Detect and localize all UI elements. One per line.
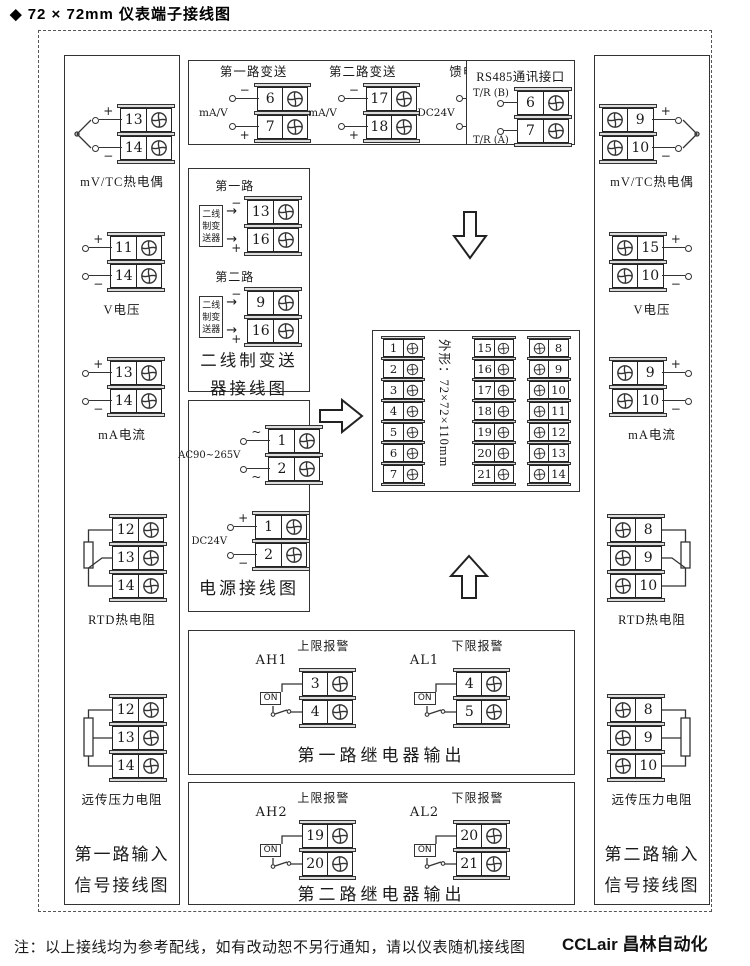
screw-icon <box>533 468 546 481</box>
screw-icon <box>142 577 160 595</box>
screw-icon <box>140 392 158 410</box>
terminal-number: 10 <box>635 754 662 778</box>
lead-negative: − <box>664 264 692 288</box>
alarm-title: 上限报警 <box>256 637 354 654</box>
terminal: 21 <box>474 465 514 483</box>
terminal-screw <box>494 423 514 441</box>
lead-positive: + <box>227 515 255 539</box>
terminal-number: 19 <box>302 824 329 848</box>
right-column-title-line1: 第二路输入 <box>605 840 700 871</box>
polarity-sign: + <box>238 512 248 524</box>
terminal-screw <box>529 444 549 462</box>
lead-wire <box>236 98 259 99</box>
polarity-sign: − <box>671 278 681 290</box>
screw-icon <box>298 432 316 450</box>
rtd-resistor-icon <box>662 514 694 602</box>
arrow-right-icon: → <box>226 204 237 219</box>
terminal: 11 <box>110 236 162 260</box>
terminal-plate <box>599 160 657 164</box>
terminal: 6 <box>383 444 423 462</box>
terminal-plate <box>609 288 667 292</box>
terminal-screw <box>610 726 636 750</box>
terminal-number: 16 <box>247 319 274 343</box>
polarity-sign: − <box>93 278 103 290</box>
terminal: 9 <box>612 361 664 385</box>
screw-icon <box>533 447 546 460</box>
terminal: 20 <box>474 444 514 462</box>
terminal-block: 2021 <box>456 820 508 880</box>
terminal-number: 13 <box>112 546 139 570</box>
terminal: 10 <box>612 264 664 288</box>
terminal-number: 13 <box>120 108 147 132</box>
rear-terminal-block: 1234567 外形：72×72×110mm 15161718192021 89… <box>372 330 580 492</box>
terminal-plate <box>244 252 302 256</box>
terminal: 10 <box>529 381 569 399</box>
terminal-screw <box>138 574 164 598</box>
left-group-current: + − 1314 mA电流 <box>82 357 162 443</box>
terminal-number: 16 <box>247 228 274 252</box>
terminal: 8 <box>610 518 662 542</box>
lead-wire <box>99 119 122 120</box>
terminal-screw <box>294 429 320 453</box>
screw-icon <box>533 426 546 439</box>
screw-icon <box>614 729 632 747</box>
left-group-pressure: 121314 远传压力电阻 <box>80 694 164 808</box>
terminal: 2 <box>268 457 320 481</box>
alarm-title: 下限报警 <box>410 637 508 654</box>
terminal-number: 3 <box>383 381 404 399</box>
terminal-screw <box>494 402 514 420</box>
terminal-screw <box>138 726 164 750</box>
relay-section-low-1: 下限报警 AL1 ON 45 <box>410 637 508 728</box>
terminal-screw <box>281 543 307 567</box>
lead-negative: − <box>82 389 110 413</box>
arrow-lead-negative: −→ <box>223 200 247 224</box>
arrow-right-icon <box>318 396 364 436</box>
terminal-number: 8 <box>635 698 662 722</box>
alarm-title: 上限报警 <box>256 789 354 806</box>
terminal-block: 1314 <box>110 357 162 417</box>
screw-icon <box>395 90 413 108</box>
terminal-screw <box>327 824 353 848</box>
terminal-number: 10 <box>637 389 664 413</box>
terminal-screw <box>294 457 320 481</box>
terminal: 14 <box>110 264 162 288</box>
terminal-screw <box>481 672 507 696</box>
screw-icon <box>497 384 510 397</box>
terminal-number: 6 <box>517 91 544 115</box>
lead-negative: − <box>338 87 366 111</box>
terminal-screw <box>327 700 353 724</box>
terminal: 14 <box>112 574 164 598</box>
screw-icon <box>497 342 510 355</box>
screw-icon <box>406 384 419 397</box>
rs485-leads: T/R (B) T/R (A) <box>473 87 517 147</box>
lead-positive: + <box>664 236 692 260</box>
terminal-column-15-21: 15161718192021 <box>474 336 514 486</box>
terminal: 16 <box>474 360 514 378</box>
relay-switch: AH2 ON <box>256 820 302 880</box>
lead-positive: + <box>92 108 120 132</box>
rs485-box: RS485通讯接口 T/R (B) T/R (A) 67 <box>466 60 575 145</box>
terminal-screw <box>138 518 164 542</box>
terminal: 7 <box>257 115 309 139</box>
terminal-plate <box>252 567 310 571</box>
terminal: 10 <box>610 754 662 778</box>
right-group-voltage: 1510 + − V电压 <box>612 232 692 318</box>
transmit-group-2: 第二路变送 mA/V − + 1718 <box>308 61 417 143</box>
leads: + − <box>227 511 255 571</box>
screw-icon <box>406 342 419 355</box>
terminal: 9 <box>247 291 299 315</box>
terminal: 1 <box>268 429 320 453</box>
relay-switch: AL1 ON <box>410 668 456 728</box>
relay-tag: AL1 <box>410 653 439 668</box>
lead-wire <box>662 400 685 401</box>
terminal-number: 4 <box>456 672 483 696</box>
terminal: 13 <box>247 200 299 224</box>
screw-icon <box>142 729 160 747</box>
terminal: 21 <box>456 852 508 876</box>
terminal-number: 3 <box>302 672 329 696</box>
lead-wire <box>345 98 368 99</box>
screw-icon <box>497 363 510 376</box>
terminal-screw <box>403 402 423 420</box>
terminal-block: 1920 <box>302 820 354 880</box>
terminal-number: 7 <box>257 115 284 139</box>
terminal-number: 12 <box>112 698 139 722</box>
lead-positive: + <box>338 115 366 139</box>
terminal-number: 4 <box>302 700 329 724</box>
terminal-number: 13 <box>247 200 274 224</box>
remote-pressure-resistor-icon <box>662 694 694 782</box>
terminal-number: 14 <box>110 264 137 288</box>
lead-wire <box>345 126 368 127</box>
screw-icon <box>406 447 419 460</box>
terminal-screw <box>146 136 172 160</box>
signal-type-label: DC24V <box>417 107 454 119</box>
terminal-block: 121314 <box>112 694 164 782</box>
terminal-screw <box>146 108 172 132</box>
terminal: 4 <box>302 700 354 724</box>
arrow-lead-negative: −→ <box>223 291 247 315</box>
lead-positive: + <box>229 115 257 139</box>
screw-icon <box>142 521 160 539</box>
terminal-number: 11 <box>110 236 137 260</box>
screw-icon <box>140 364 158 382</box>
terminal-screw <box>494 339 514 357</box>
lead-wire <box>652 147 675 148</box>
dimension-label: 外形：72×72×110mm <box>436 339 455 467</box>
terminal-block: 12 <box>268 425 320 485</box>
terminal-plate <box>254 139 312 143</box>
terminal-number: 1 <box>383 339 404 357</box>
terminal-number: 2 <box>383 360 404 378</box>
right-column-title-line2: 信号接线图 <box>605 871 700 902</box>
terminal-number: 14 <box>548 465 569 483</box>
left-group-voltage: + − 1114 V电压 <box>82 232 162 318</box>
screw-icon <box>547 122 565 140</box>
terminal-screw <box>403 444 423 462</box>
terminal: 3 <box>302 672 354 696</box>
terminal-screw <box>610 754 636 778</box>
relay-on-label: ON <box>414 692 436 705</box>
group-title: 第一路变送 <box>220 61 288 80</box>
lead-wire <box>89 247 112 248</box>
screw-icon <box>614 757 632 775</box>
brand-watermark: CCLair 昌林自动化 <box>562 930 707 955</box>
right-group-mvtc: 910 + − mV/TC热电偶 <box>602 104 702 190</box>
screw-icon <box>331 675 349 693</box>
terminal-number: 9 <box>548 360 569 378</box>
terminal-block: 916 <box>247 287 299 347</box>
terminal-block: 910 <box>612 357 664 417</box>
screw-icon <box>497 405 510 418</box>
group-label: 远传压力电阻 <box>81 789 162 808</box>
lead-negative: − <box>664 389 692 413</box>
terminal: 18 <box>366 115 418 139</box>
lead-ac: ~ <box>240 457 268 481</box>
terminal-plate <box>609 413 667 417</box>
relay-section-high-1: 上限报警 AH1 ON 34 <box>256 637 354 728</box>
lead-wire <box>89 400 112 401</box>
arrow-right-icon: → <box>226 232 237 247</box>
lead-negative: − <box>654 136 682 160</box>
lead-negative: − <box>92 136 120 160</box>
polarity-sign: + <box>93 358 103 370</box>
terminal-screw <box>529 360 549 378</box>
screw-icon <box>485 827 503 845</box>
relay-box-1-title: 第一路继电器输出 <box>199 741 564 766</box>
terminal-number: 9 <box>637 361 664 385</box>
lead-wire <box>662 372 685 373</box>
lead-positive: + <box>664 361 692 385</box>
terminal: 1 <box>383 339 423 357</box>
screw-icon <box>142 549 160 567</box>
transmit-group-1: 第一路变送 mA/V − + 67 <box>199 61 308 143</box>
lead-wire <box>652 119 675 120</box>
terminal-number: 20 <box>456 824 483 848</box>
screw-icon <box>277 294 295 312</box>
terminal-screw <box>273 200 299 224</box>
terminal-screw <box>612 389 638 413</box>
lead-wire <box>503 102 518 103</box>
terminal-screw <box>602 108 628 132</box>
screw-icon <box>497 447 510 460</box>
terminal-number: 8 <box>548 339 569 357</box>
arrow-right-icon: → <box>226 323 237 338</box>
polarity-sign: − <box>240 84 250 96</box>
polarity-sign: − <box>103 150 113 162</box>
polarity-sign: + <box>240 129 250 141</box>
terminal: 17 <box>366 87 418 111</box>
terminal-screw <box>136 389 162 413</box>
screw-icon <box>616 364 634 382</box>
terminal-number: 10 <box>548 381 569 399</box>
left-column-title: 第一路输入 信号接线图 <box>75 840 170 901</box>
relay-tag: AH2 <box>256 805 288 820</box>
right-group-current: 910 + − mA电流 <box>612 357 692 443</box>
terminal-number: 7 <box>517 119 544 143</box>
leads: − + <box>229 83 257 143</box>
page-title: ◆ 72 × 72mm 仪表端子接线图 <box>10 3 231 24</box>
terminal-plate <box>117 160 175 164</box>
terminal: 13 <box>112 726 164 750</box>
terminal: 19 <box>474 423 514 441</box>
terminal: 9 <box>602 108 654 132</box>
left-group-mvtc: + − 1314 mV/TC热电偶 <box>72 104 172 190</box>
screw-icon <box>406 405 419 418</box>
terminal-plate <box>109 778 167 782</box>
screw-icon <box>614 701 632 719</box>
screw-icon <box>331 703 349 721</box>
screw-icon <box>150 139 168 157</box>
terminal: 7 <box>383 465 423 483</box>
thermocouple-icon <box>72 104 92 164</box>
group-label: mV/TC热电偶 <box>610 171 694 190</box>
terminal-column-8-14: 891011121314 <box>529 336 569 486</box>
group-label: V电压 <box>103 299 140 318</box>
arrow-lead-positive: +→ <box>223 228 247 252</box>
terminal-number: 6 <box>383 444 404 462</box>
screw-icon <box>616 392 634 410</box>
polarity-sign: − <box>238 557 248 569</box>
screw-icon <box>331 827 349 845</box>
terminal-screw <box>602 136 628 160</box>
screw-icon <box>277 231 295 249</box>
polarity-sign: + <box>671 233 681 245</box>
screw-icon <box>286 118 304 136</box>
terminal: 9 <box>529 360 569 378</box>
terminal-number: 11 <box>548 402 569 420</box>
rs485-title: RS485通讯接口 <box>473 66 568 85</box>
terminal-plate <box>107 288 165 292</box>
relay-section-low-2: 下限报警 AL2 ON 2021 <box>410 789 508 880</box>
terminal-screw <box>391 115 417 139</box>
group-label: mA电流 <box>628 424 676 443</box>
terminal-number: 10 <box>635 574 662 598</box>
terminal-plate <box>607 778 665 782</box>
screw-icon <box>142 757 160 775</box>
signal-type-label: mA/V <box>199 107 228 119</box>
lead-wire <box>89 372 112 373</box>
terminal: 12 <box>529 423 569 441</box>
terminal: 9 <box>610 726 662 750</box>
terminal-number: 14 <box>112 754 139 778</box>
terminal-screw <box>612 264 638 288</box>
terminal-number: 17 <box>366 87 393 111</box>
terminal: 20 <box>302 852 354 876</box>
terminal-number: 14 <box>112 574 139 598</box>
terminal: 10 <box>610 574 662 598</box>
terminal: 5 <box>383 423 423 441</box>
screw-icon <box>298 460 316 478</box>
screw-icon <box>140 267 158 285</box>
terminal-screw <box>494 381 514 399</box>
terminal-block: 121314 <box>112 514 164 602</box>
screw-icon <box>616 239 634 257</box>
terminal-screw <box>529 381 549 399</box>
terminal-block: 1510 <box>612 232 664 292</box>
terminal-number: 1 <box>268 429 295 453</box>
terminal-plate <box>109 598 167 602</box>
terminal: 3 <box>383 381 423 399</box>
leads: + − <box>82 232 110 292</box>
terminal-number: 16 <box>474 360 495 378</box>
terminal-plate <box>607 598 665 602</box>
screw-icon <box>286 90 304 108</box>
lead-positive: + <box>82 236 110 260</box>
terminal: 14 <box>112 754 164 778</box>
terminal-plate <box>363 139 421 143</box>
screw-icon <box>533 384 546 397</box>
screw-icon <box>277 203 295 221</box>
screw-icon <box>406 363 419 376</box>
terminal-screw <box>481 852 507 876</box>
screw-icon <box>614 521 632 539</box>
terminal-screw <box>138 546 164 570</box>
terminal-number: 14 <box>110 389 137 413</box>
left-column-title-line2: 信号接线图 <box>75 871 170 902</box>
terminal: 5 <box>456 700 508 724</box>
lead-positive: + <box>82 361 110 385</box>
section-title: 第一路 <box>215 177 299 194</box>
screw-icon <box>497 468 510 481</box>
right-group-pressure: 8910 远传压力电阻 <box>610 694 694 808</box>
terminal-screw <box>610 546 636 570</box>
leads: + − <box>92 104 120 164</box>
terminal-screw <box>327 672 353 696</box>
relay-on-label: ON <box>414 844 436 857</box>
screw-icon <box>285 546 303 564</box>
terminal-block: 67 <box>517 87 569 147</box>
terminal-plate <box>299 724 357 728</box>
terminal: 2 <box>383 360 423 378</box>
terminal: 16 <box>247 319 299 343</box>
terminal-number: 2 <box>255 543 282 567</box>
terminal-block: 1316 <box>247 196 299 256</box>
terminal-number: 9 <box>247 291 274 315</box>
terminal-screw <box>529 339 549 357</box>
lead-positive: + <box>654 108 682 132</box>
terminal-screw <box>403 360 423 378</box>
terminal-screw <box>543 91 569 115</box>
terminal: 12 <box>112 518 164 542</box>
terminal-column-1-7: 1234567 <box>383 336 423 486</box>
terminal-screw <box>481 700 507 724</box>
screw-icon <box>485 703 503 721</box>
screw-icon <box>614 549 632 567</box>
screw-icon <box>485 675 503 693</box>
terminal-number: 17 <box>474 381 495 399</box>
transmitter-device-box: 二线制变送器 <box>199 296 223 338</box>
remote-pressure-resistor-icon <box>80 694 112 782</box>
terminal-number: 2 <box>268 457 295 481</box>
terminal-plate <box>527 483 571 486</box>
group-label: mA电流 <box>98 424 146 443</box>
polarity-sign: + <box>661 105 671 117</box>
terminal: 2 <box>255 543 307 567</box>
terminal-screw <box>136 236 162 260</box>
terminal-number: 1 <box>255 515 282 539</box>
terminal-screw <box>529 465 549 483</box>
screw-icon <box>606 139 624 157</box>
terminal-number: 9 <box>635 726 662 750</box>
transmitter-section-2: 第二路 二线制变送器 −→ +→ 916 <box>199 268 299 347</box>
relay-tag: AL2 <box>410 805 439 820</box>
terminal-screw <box>391 87 417 111</box>
terminal-screw <box>494 360 514 378</box>
